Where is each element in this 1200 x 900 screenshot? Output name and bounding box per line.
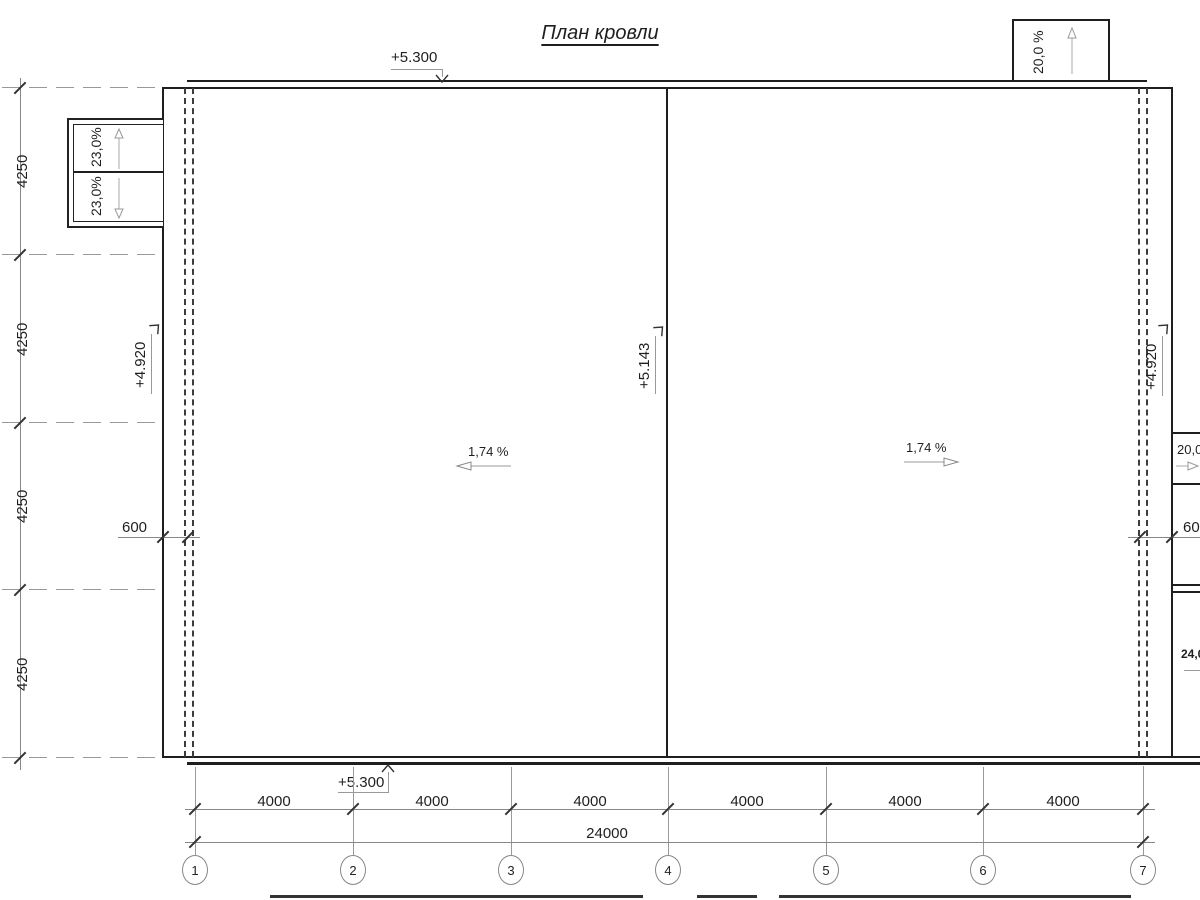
grid-bubble-1: 1 — [182, 855, 208, 885]
left-arrow-icon — [455, 460, 513, 472]
row-axis-line — [2, 757, 163, 758]
total-dim-label: 24000 — [572, 825, 642, 842]
ridge-line — [666, 88, 668, 757]
grid-bubble-3: 3 — [498, 855, 524, 885]
right-canopy-slope-label: 20,0 % — [1177, 442, 1200, 457]
wall-dashed-line-left-1 — [184, 88, 186, 757]
grid-bubble-2: 2 — [340, 855, 366, 885]
left-dim-label: 4250 — [14, 644, 31, 704]
grid-bubble-6: 6 — [970, 855, 996, 885]
left-dim-label: 4250 — [14, 141, 31, 201]
down-chevron-arrow-icon — [434, 73, 450, 84]
row-axis-line — [2, 87, 163, 88]
down-arrow-icon — [113, 176, 125, 220]
slope-label-right: 1,74 % — [906, 440, 946, 455]
right-arrow-icon — [1176, 461, 1200, 471]
left-dim-label: 4250 — [14, 476, 31, 536]
bottom-dim-label: 4000 — [717, 793, 777, 810]
slope-label-left: 1,74 % — [468, 444, 508, 459]
right-arrow-icon — [902, 456, 960, 468]
bottom-dim-label: 4000 — [244, 793, 304, 810]
left-dim-label: 4250 — [14, 309, 31, 369]
offset-dim-label-right: 600 — [1183, 519, 1200, 536]
roof-plan-drawing: План кровли 20,0 % 23,0% 23,0% 4250 4250… — [0, 0, 1200, 900]
elevation-leader — [151, 334, 152, 394]
top-right-canopy-slope-label: 20,0 % — [1030, 25, 1046, 79]
wall-dashed-line-left-2 — [192, 88, 194, 757]
bottom-dim-line-segments — [185, 809, 1155, 810]
right-ledge-line-2 — [1172, 591, 1200, 593]
bottom-dim-line-total — [185, 842, 1155, 843]
elevation-mark-left: +4.920 — [132, 334, 149, 396]
left-canopy-divider — [73, 171, 163, 173]
bottom-dim-label: 4000 — [875, 793, 935, 810]
grid-bubble-label: 4 — [664, 863, 671, 878]
elevation-leader — [388, 772, 389, 792]
titleblock-edge-segment — [270, 895, 643, 898]
wall-dashed-line-right-2 — [1146, 88, 1148, 757]
grid-bubble-label: 5 — [822, 863, 829, 878]
wall-dashed-line-right-1 — [1138, 88, 1140, 757]
bottom-dim-label: 4000 — [1033, 793, 1093, 810]
left-canopy-upper-slope-label: 23,0% — [88, 125, 104, 169]
row-axis-line — [2, 422, 163, 423]
grid-bubble-label: 3 — [507, 863, 514, 878]
elevation-mark-top: +5.300 — [391, 49, 437, 66]
grid-bubble-label: 7 — [1139, 863, 1146, 878]
up-arrow-icon — [113, 127, 125, 171]
elevation-leader — [338, 792, 389, 793]
elevation-mark-right: +4.920 — [1143, 336, 1160, 398]
offset-dim-label-left: 600 — [122, 519, 147, 536]
up-arrow-icon — [1066, 26, 1078, 76]
right-lower-slope-label: 24,0 % — [1181, 647, 1200, 661]
eave-bottom-thick-line — [187, 762, 1200, 765]
right-lower-leader — [1184, 670, 1200, 671]
eave-bottom-thin-line — [1172, 756, 1200, 758]
elevation-mark-ridge: +5.143 — [636, 336, 653, 396]
grid-bubble-4: 4 — [655, 855, 681, 885]
titleblock-edge-segment — [697, 895, 757, 898]
grid-bubble-label: 2 — [349, 863, 356, 878]
top-right-canopy — [1012, 19, 1110, 82]
grid-bubble-label: 6 — [979, 863, 986, 878]
right-canopy-top-line — [1172, 432, 1200, 434]
parapet-top-line — [187, 80, 1147, 82]
bottom-dim-label: 4000 — [402, 793, 462, 810]
row-axis-line — [2, 589, 163, 590]
elevation-leader — [655, 336, 656, 394]
right-ledge-line-1 — [1172, 584, 1200, 586]
right-canopy-bottom-line — [1172, 483, 1200, 485]
bottom-dim-label: 4000 — [560, 793, 620, 810]
left-canopy-lower-slope-label: 23,0% — [88, 174, 104, 218]
grid-bubble-7: 7 — [1130, 855, 1156, 885]
elevation-leader — [391, 69, 443, 70]
row-axis-line — [2, 254, 163, 255]
up-chevron-arrow-icon — [380, 763, 396, 774]
elevation-mark-bottom: +5.300 — [338, 774, 384, 791]
grid-bubble-5: 5 — [813, 855, 839, 885]
elevation-leader — [1162, 336, 1163, 396]
titleblock-edge-segment — [779, 895, 1131, 898]
grid-bubble-label: 1 — [191, 863, 198, 878]
